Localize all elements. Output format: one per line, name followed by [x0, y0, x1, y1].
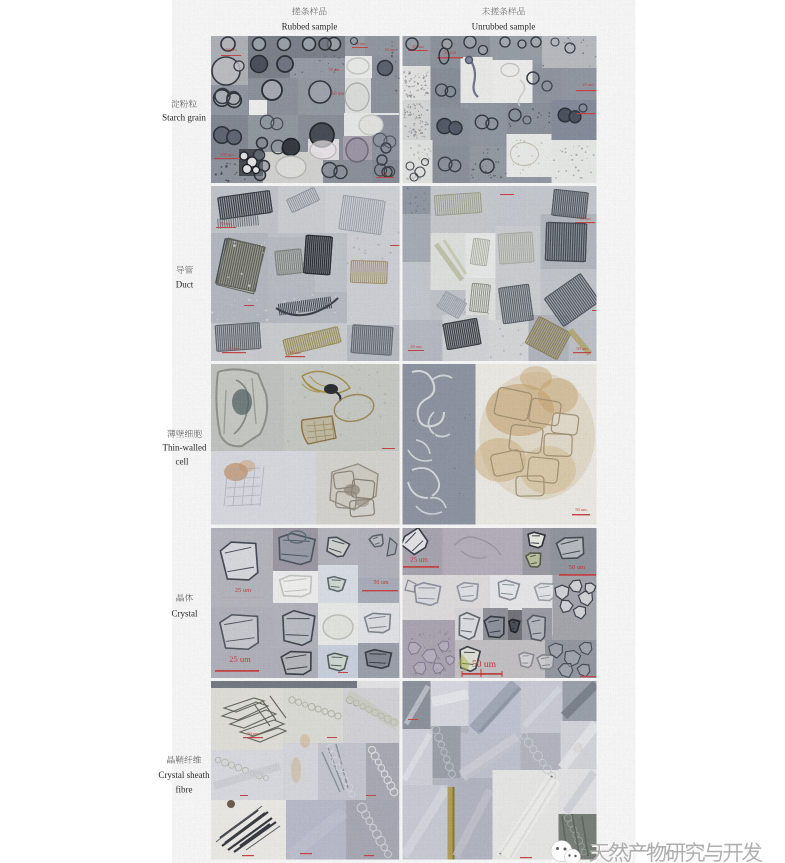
- svg-text:Thin-walled: Thin-walled: [163, 443, 207, 453]
- svg-text:Crystal sheath: Crystal sheath: [158, 770, 210, 780]
- svg-text:Starch grain: Starch grain: [162, 113, 206, 123]
- svg-text:fibre: fibre: [176, 785, 193, 795]
- svg-text:Crystal: Crystal: [172, 609, 198, 619]
- svg-text:Unrubbed sample: Unrubbed sample: [472, 22, 536, 32]
- svg-text:Rubbed sample: Rubbed sample: [282, 22, 338, 32]
- svg-text:cell: cell: [176, 457, 189, 467]
- svg-text:Duct: Duct: [176, 280, 194, 290]
